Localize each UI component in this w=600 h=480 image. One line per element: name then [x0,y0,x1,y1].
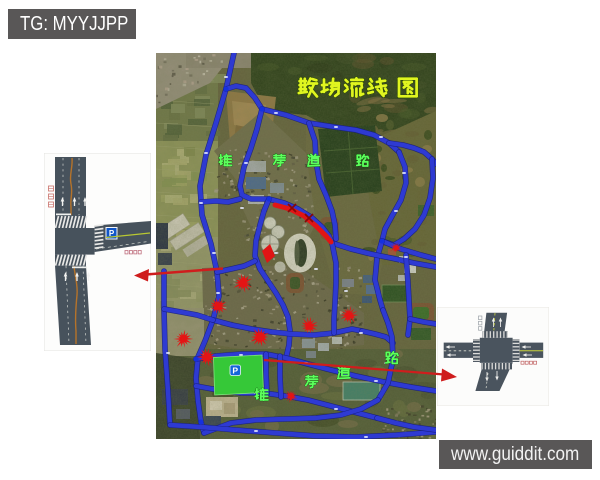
svg-text:P: P [232,366,238,376]
